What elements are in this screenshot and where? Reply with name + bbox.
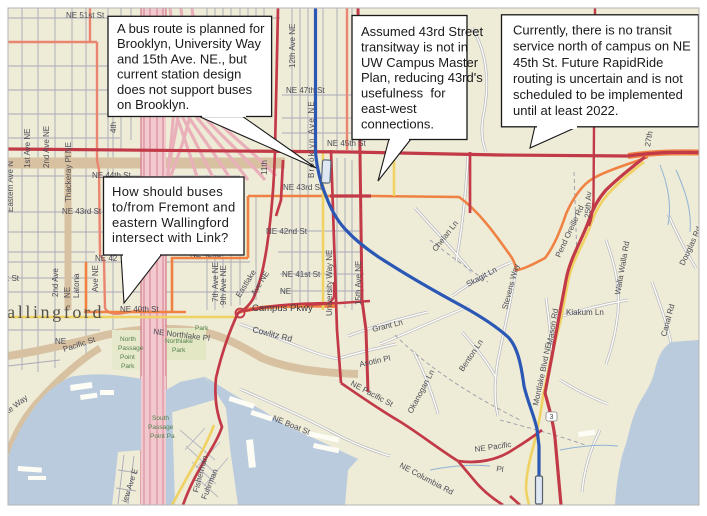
svg-text:South: South [152,415,169,422]
svg-text:3: 3 [550,414,554,421]
svg-text:25th Av: 25th Av [583,191,593,218]
svg-text:11th: 11th [260,160,269,175]
svg-text:Park: Park [195,325,209,332]
svg-text:NE 45th St: NE 45th St [327,139,366,148]
svg-text:NE 43rd St: NE 43rd St [62,207,102,216]
svg-text:1st Ave NE: 1st Ave NE [23,129,32,168]
svg-text:Northlake: Northlake [165,338,193,345]
svg-text:NE 41st St: NE 41st St [282,270,321,279]
svg-text:4th: 4th [109,122,118,133]
svg-text:Latona: Latona [72,273,81,298]
svg-text:Ave NE: Ave NE [91,265,100,292]
svg-text:NE 51st St: NE 51st St [66,11,105,20]
svg-text:9th Ave NE: 9th Ave NE [219,265,228,305]
svg-text:2nd Ave NE: 2nd Ave NE [42,126,51,168]
svg-text:NE 42nd St: NE 42nd St [266,227,308,236]
svg-text:How should buses to/from F: How should buses to/from Fremont and eas… [112,184,239,245]
svg-text:Campus Pkwy: Campus Pkwy [252,303,313,314]
svg-text:15th Ave NE: 15th Ave NE [354,261,363,305]
svg-text:Thackeray Pl NE: Thackeray Pl NE [64,142,73,202]
svg-text:Passage: Passage [118,345,144,352]
svg-text:NE: NE [280,287,291,296]
svg-text:Point Pa: Point Pa [150,433,175,440]
svg-text:12th Ave NE: 12th Ave NE [288,24,297,68]
svg-text:NE 40th St: NE 40th St [120,305,159,314]
svg-text:Park: Park [121,363,135,370]
svg-text:Point: Point [120,354,135,361]
svg-text:Park: Park [172,347,186,354]
svg-text:Passage: Passage [148,424,174,431]
svg-text:North: North [120,336,136,343]
svg-text:NE 43rd St: NE 43rd St [283,183,323,192]
svg-text:Wallingford: Wallingford [0,302,104,322]
svg-text:Kiakum Ln: Kiakum Ln [566,308,604,317]
svg-text:University Way NE: University Way NE [325,250,334,316]
svg-text:2nd Ave: 2nd Ave [51,268,60,297]
svg-text:NE 47th St: NE 47th St [286,86,325,95]
svg-text:NE: NE [63,287,72,298]
